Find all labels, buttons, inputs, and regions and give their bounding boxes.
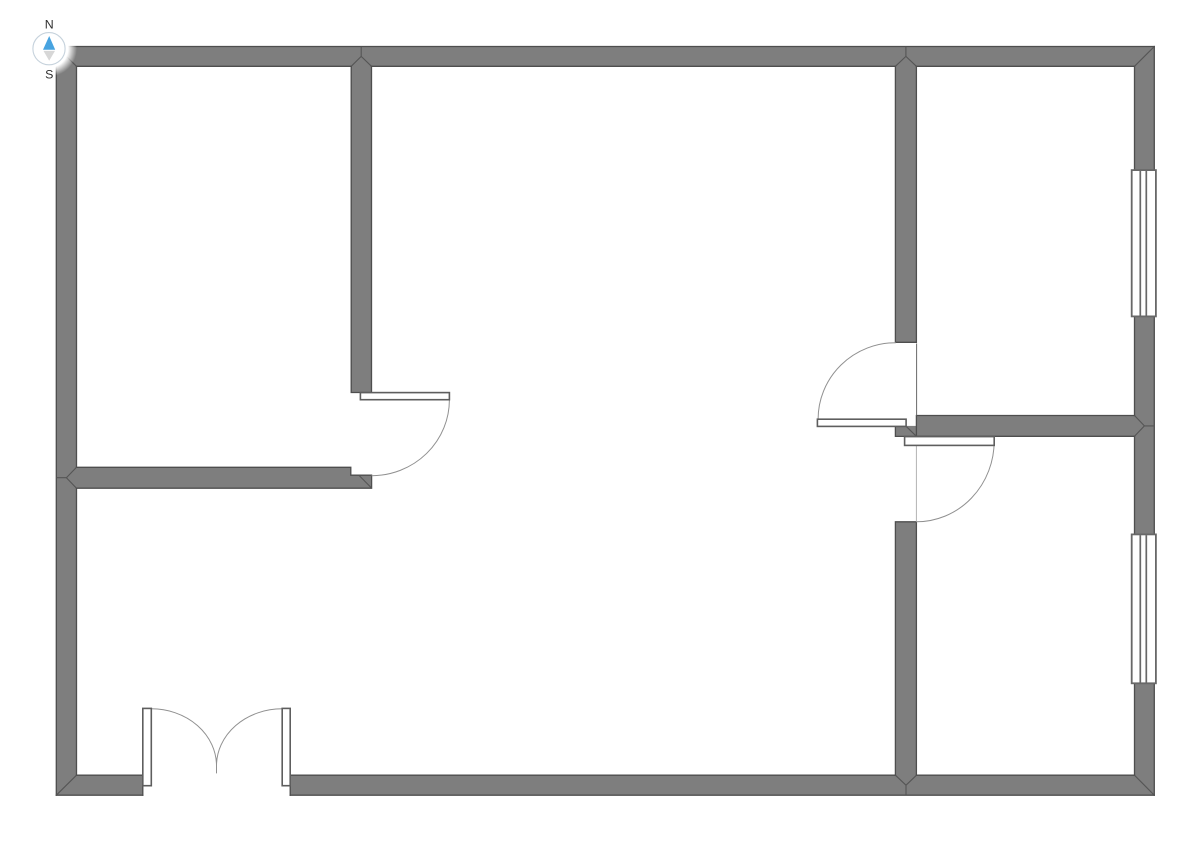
- svg-text:S: S: [45, 68, 53, 82]
- svg-text:N: N: [45, 18, 54, 32]
